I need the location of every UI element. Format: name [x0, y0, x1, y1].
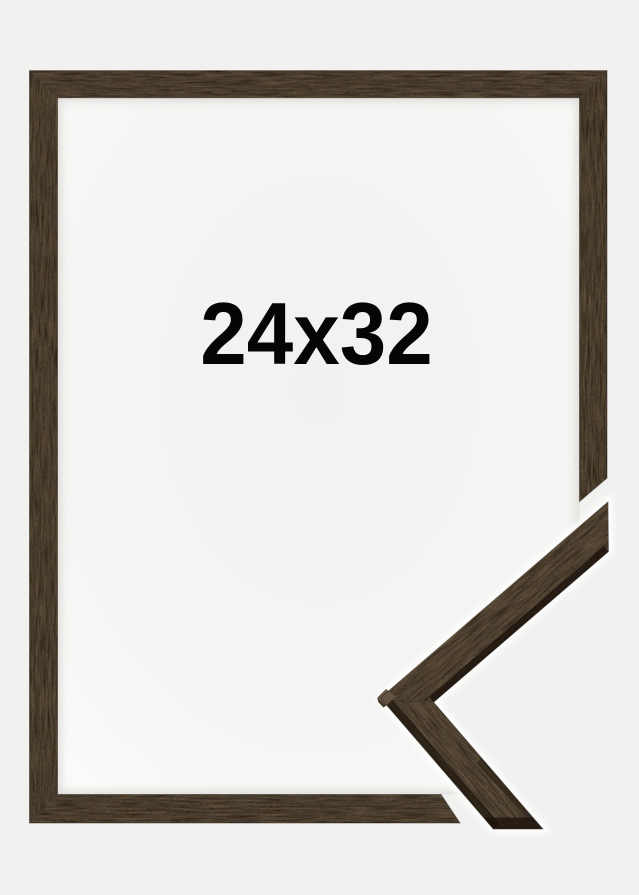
svg-text:24x32: 24x32	[200, 285, 432, 383]
